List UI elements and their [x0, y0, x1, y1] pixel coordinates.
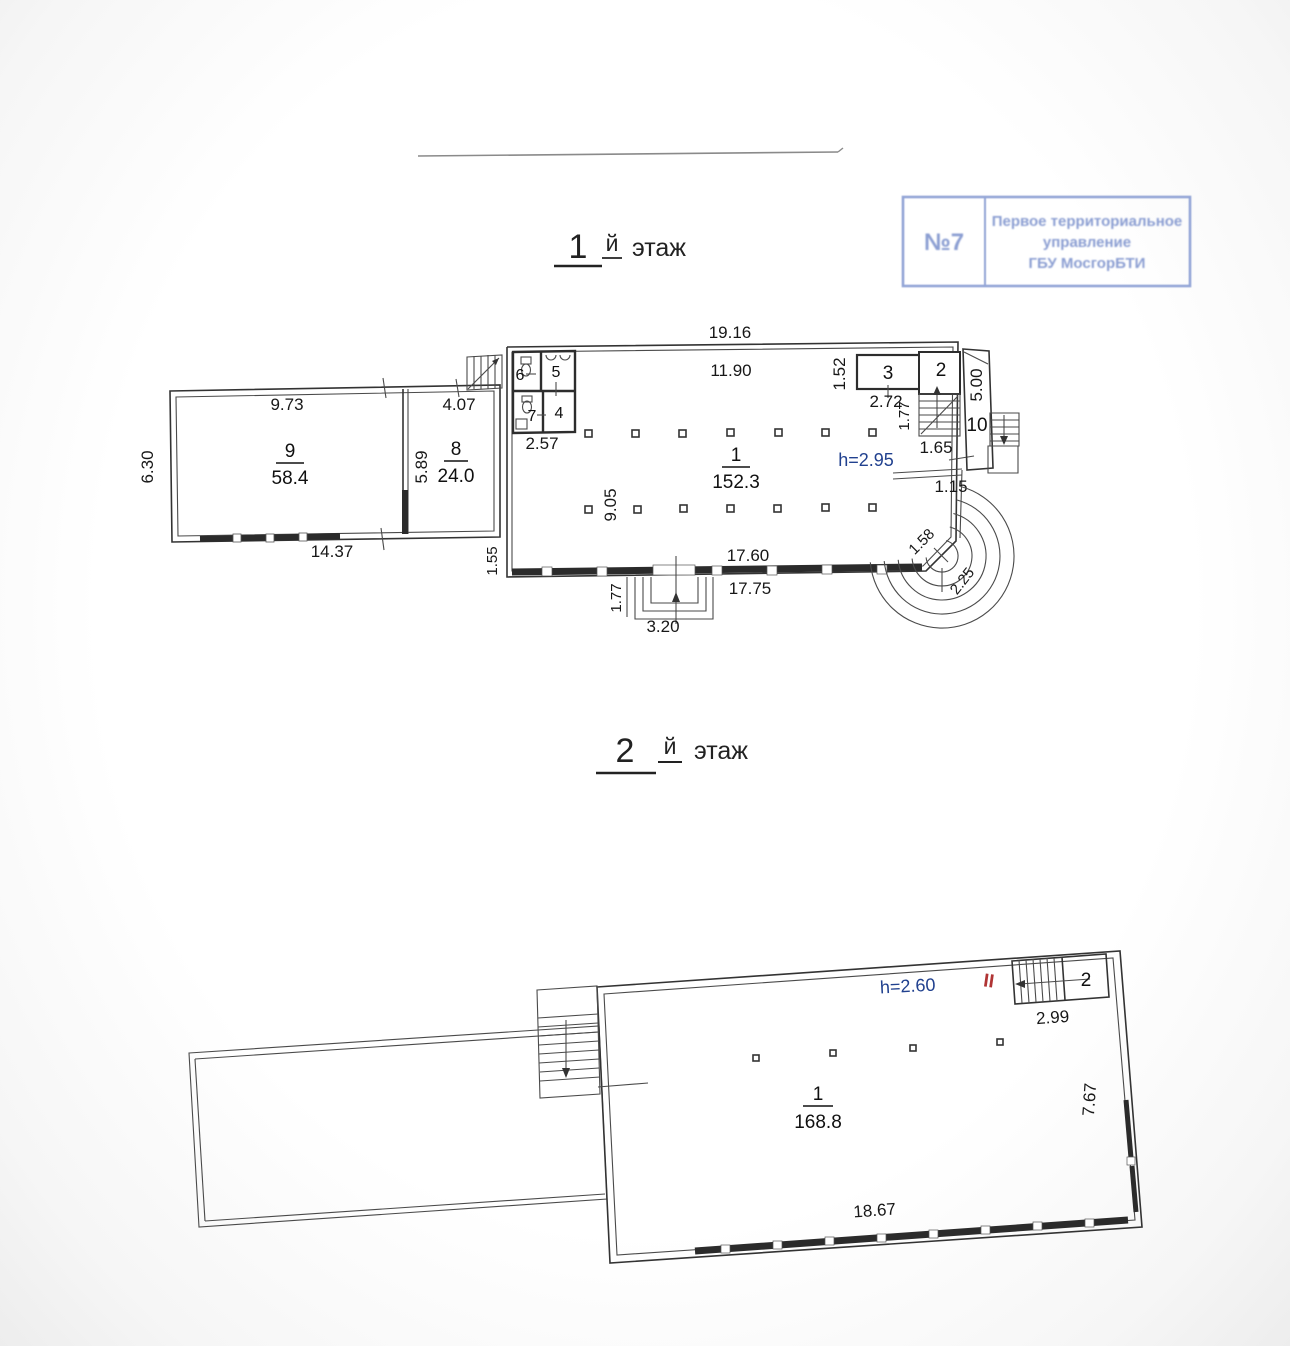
room1-area: 152.3: [712, 472, 760, 493]
dim-14-37: 14.37: [311, 542, 354, 561]
dim-1-65: 1.65: [919, 438, 952, 457]
floor1-columns: [585, 429, 876, 513]
stamp-line1: Первое территориальное: [992, 213, 1183, 230]
floor1-plan: 9.73 6.30 9 58.4 5.89 8 24.0 4.07 14.37 …: [138, 323, 1019, 636]
bti-stamp: №7 Первое территориальное управление ГБУ…: [903, 197, 1190, 286]
floor1-title-number: 1: [569, 228, 588, 266]
dim-5-00: 5.00: [967, 368, 986, 401]
floor2-room1-area: 168.8: [794, 1112, 842, 1133]
room3-number: 3: [883, 363, 894, 384]
floor2-plan: 2 2.99 h=2.60 II 1 168.8 7.67 18.67: [189, 951, 1142, 1263]
floorplan-drawing: 1 й этаж №7 Первое территориальное управ…: [0, 0, 1290, 1346]
floor2-external-stair: [537, 986, 648, 1098]
dim-17-75: 17.75: [729, 579, 772, 598]
room9-number: 9: [285, 441, 296, 462]
dim-2-99: 2.99: [1035, 1007, 1069, 1028]
floor2-room2-number: 2: [1081, 970, 1092, 991]
dim-2-57: 2.57: [525, 434, 558, 453]
room5-number: 5: [552, 364, 561, 381]
room9-area: 58.4: [272, 468, 309, 489]
floor1-hall-labels: 19.16 11.90 1 152.3 h=2.95 9.05 17.60 17…: [601, 323, 894, 598]
stamp-line2: управление: [1043, 234, 1131, 251]
room8-area: 24.0: [438, 466, 475, 487]
room7-number: 7: [528, 408, 537, 425]
dim-7-67: 7.67: [1079, 1082, 1100, 1116]
room6-number: 6: [516, 367, 525, 384]
floor2-columns: [753, 1039, 1003, 1061]
dim-11-90: 11.90: [710, 361, 751, 380]
dim-6-30: 6.30: [138, 450, 157, 483]
room2-number: 2: [936, 360, 947, 381]
floor1-sanitary-block: 6 5 7 4 2.57: [513, 351, 575, 453]
scanned-floorplan-page: 1 й этаж №7 Первое территориальное управ…: [0, 0, 1290, 1346]
floor2-title-word: этаж: [694, 737, 748, 765]
floor1-title-suffix: й: [606, 230, 619, 256]
dim-3-20: 3.20: [646, 617, 679, 636]
dim-1-77-stair: 1.77: [896, 401, 913, 430]
dim-1-58: 1.58: [905, 525, 938, 558]
dim-9-05: 9.05: [601, 488, 620, 521]
stamp-number: №7: [924, 229, 964, 256]
floor2-height-note: h=2.60: [879, 975, 936, 998]
floor1-annex-labels: 9.73 6.30 9 58.4 5.89 8 24.0 4.07 14.37 …: [138, 395, 501, 576]
room10-number: 10: [966, 415, 987, 436]
floor2-title-number: 2: [616, 732, 635, 770]
room4-number: 4: [555, 405, 564, 422]
floor2-room2-stairs: 2 2.99: [1012, 954, 1109, 1028]
floor1-height-note: h=2.95: [838, 450, 894, 470]
floor2-section-mark: II: [982, 970, 995, 992]
stamp-line3: ГБУ МосгорБТИ: [1029, 255, 1146, 272]
floor2-annex-roof-outline: [189, 1026, 607, 1227]
floor2-title: 2 й этаж: [596, 732, 748, 773]
dim-5-89: 5.89: [412, 450, 431, 483]
floor1-corner-steps: 1.58 2.25: [870, 487, 1014, 629]
floor2-title-suffix: й: [664, 733, 677, 759]
floor1-title-word: этаж: [632, 234, 686, 262]
dim-1-77-porch: 1.77: [608, 583, 625, 612]
dim-1-55: 1.55: [484, 546, 501, 575]
room8-number: 8: [451, 439, 462, 460]
page-top-rule: [418, 148, 843, 156]
dim-1-52: 1.52: [830, 357, 849, 390]
floor2-room1-number: 1: [813, 1084, 824, 1105]
floor1-title: 1 й этаж: [554, 228, 686, 266]
dim-9-73: 9.73: [270, 395, 303, 414]
dim-17-60: 17.60: [727, 546, 770, 565]
dim-18-67: 18.67: [853, 1200, 897, 1222]
dim-19-16: 19.16: [709, 323, 752, 342]
room1-number: 1: [731, 445, 742, 466]
dim-4-07: 4.07: [442, 395, 475, 414]
